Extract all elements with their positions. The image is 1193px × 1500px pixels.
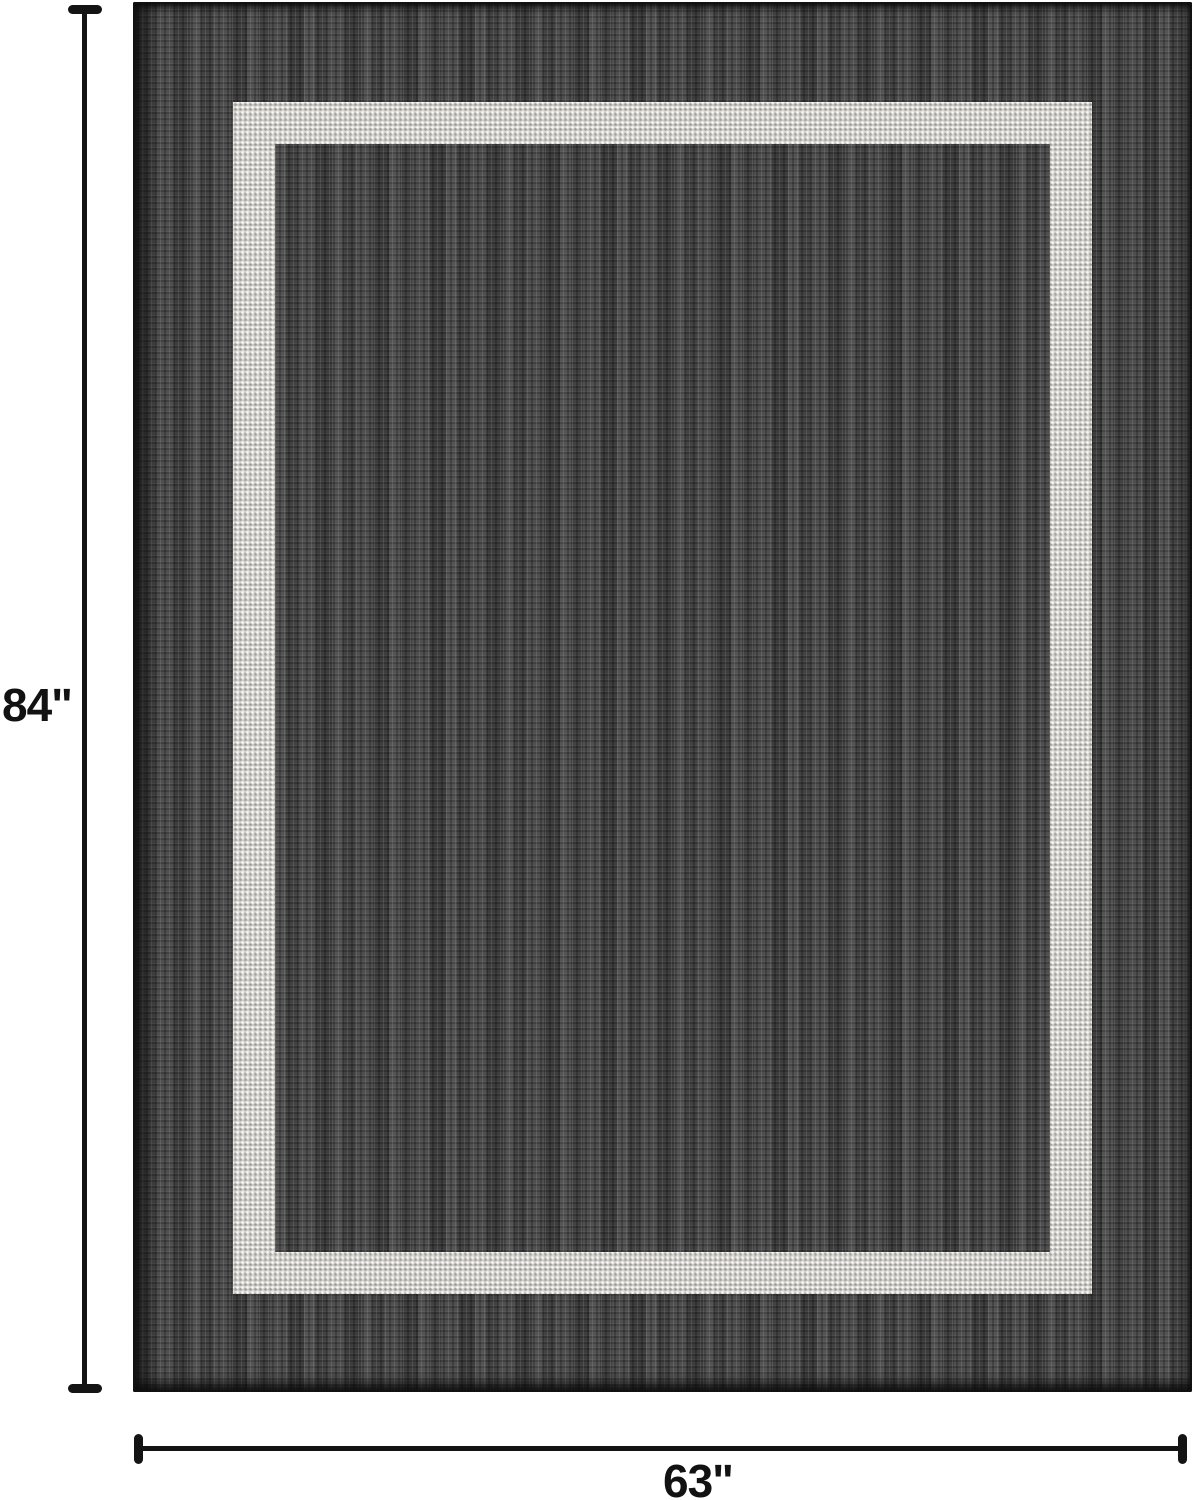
height-label: 84": [0, 682, 74, 728]
product-dimension-figure: 84" 63": [0, 0, 1193, 1500]
rug-inner-field: [275, 144, 1050, 1252]
width-dimension-line: [134, 1446, 1187, 1451]
width-label: 63": [560, 1458, 836, 1500]
height-dimension-line: [82, 5, 87, 1393]
rug-image: [133, 2, 1192, 1392]
